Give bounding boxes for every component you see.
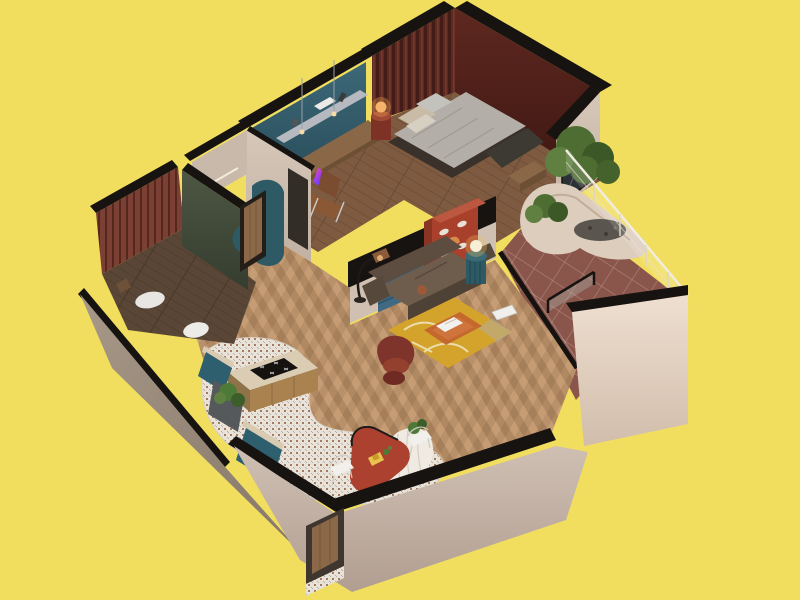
copper-bowl — [417, 285, 427, 295]
gravel-stone — [588, 226, 592, 230]
foliage — [596, 160, 620, 184]
pendant-bulb — [332, 112, 337, 117]
gravel-stone — [604, 232, 608, 236]
parapet-face — [572, 295, 688, 446]
doorway-opening — [288, 168, 308, 250]
table-lamp — [376, 102, 387, 113]
fluted-side-table — [465, 235, 487, 284]
armchair-base — [383, 371, 405, 385]
foliage — [548, 202, 568, 222]
pendant-bulb — [300, 130, 305, 135]
plant — [231, 393, 245, 407]
table-plant — [388, 446, 392, 450]
isometric-floorplan — [0, 0, 800, 600]
foliage — [525, 205, 543, 223]
lamp-glow — [377, 255, 383, 261]
table-plant — [383, 449, 389, 455]
lamp-base — [354, 297, 366, 303]
nightstand — [371, 97, 391, 140]
globe-lamp — [470, 240, 482, 252]
plant — [214, 392, 226, 404]
apartment-render — [0, 0, 800, 600]
parapet-wall — [566, 285, 688, 446]
